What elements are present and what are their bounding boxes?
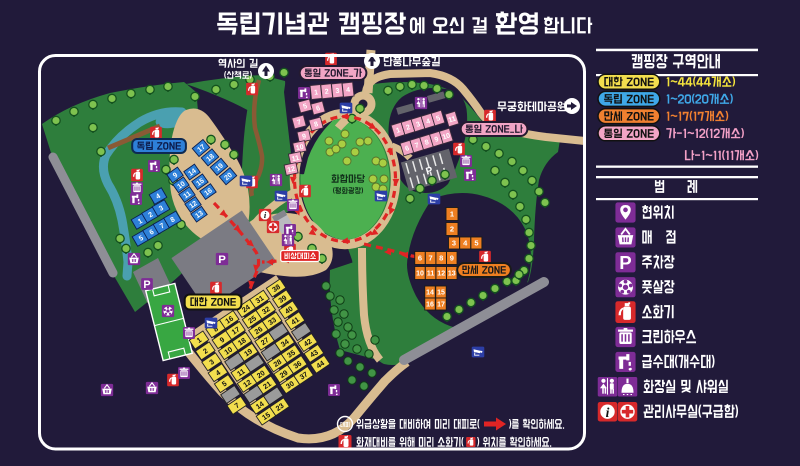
svg-text:11: 11 xyxy=(427,271,435,278)
svg-text:6: 6 xyxy=(418,254,422,263)
svg-text:2: 2 xyxy=(450,225,454,234)
svg-text:5: 5 xyxy=(474,239,478,248)
svg-text:1: 1 xyxy=(450,210,454,219)
svg-text:14: 14 xyxy=(426,290,434,297)
svg-text:17: 17 xyxy=(437,302,445,309)
svg-text:3: 3 xyxy=(452,239,456,248)
svg-text:15: 15 xyxy=(437,290,445,297)
svg-text:7: 7 xyxy=(429,254,433,263)
svg-text:12: 12 xyxy=(437,271,445,278)
svg-text:10: 10 xyxy=(416,271,424,278)
svg-text:8: 8 xyxy=(439,254,443,263)
svg-text:13: 13 xyxy=(448,271,456,278)
svg-text:16: 16 xyxy=(426,302,434,309)
svg-text:9: 9 xyxy=(450,254,454,263)
